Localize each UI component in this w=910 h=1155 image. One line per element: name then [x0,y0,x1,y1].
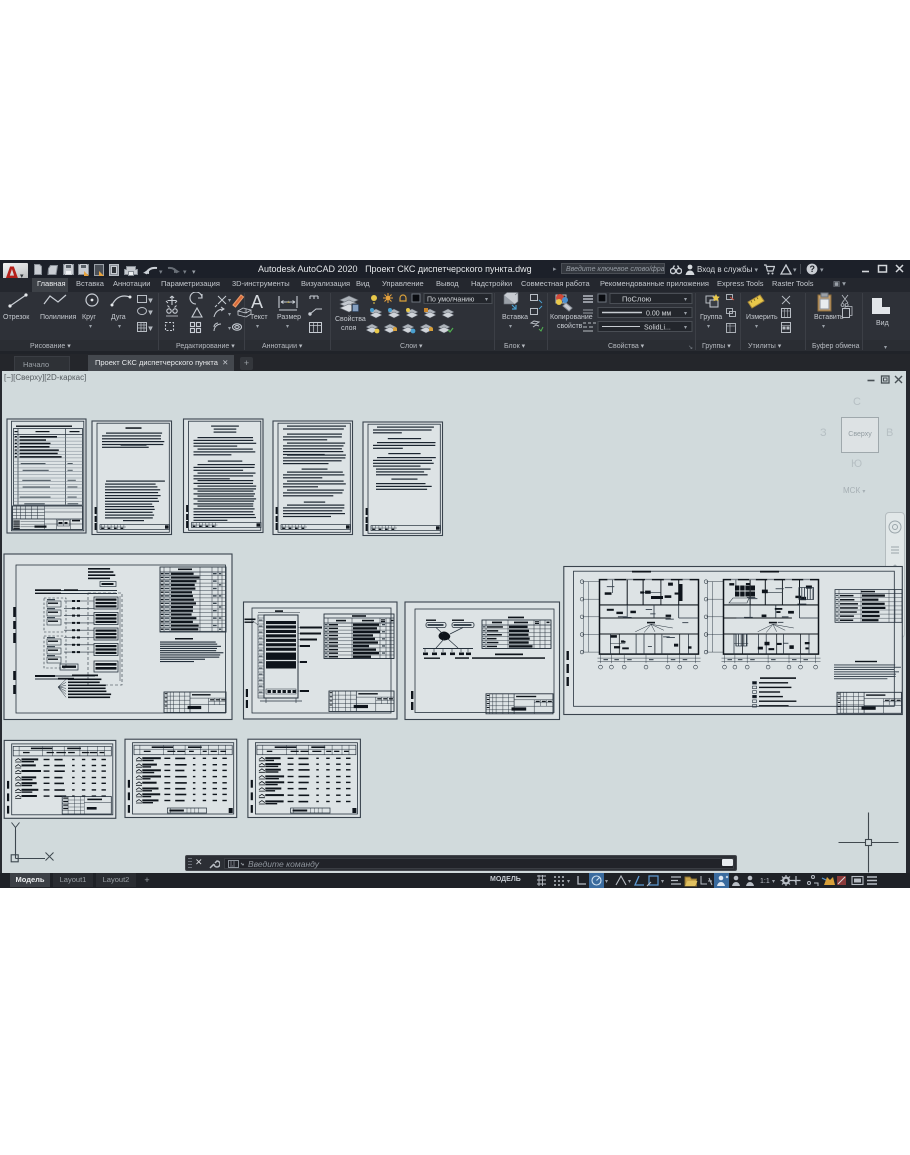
svg-text:▾: ▾ [684,311,687,317]
svg-text:Буфер обмена: Буфер обмена [812,342,860,350]
svg-text:▾: ▾ [822,324,825,330]
svg-text:Вид: Вид [876,320,889,327]
svg-text:0.00 мм: 0.00 мм [646,311,671,318]
svg-text:Блок ▾: Блок ▾ [504,343,526,350]
svg-text:↘: ↘ [688,345,693,351]
svg-text:▾: ▾ [684,297,687,303]
svg-text:▾: ▾ [628,879,631,885]
svg-text:▾: ▾ [192,269,196,276]
svg-text:▾: ▾ [149,326,152,332]
svg-text:Вставка: Вставка [502,314,528,321]
svg-text:▾: ▾ [228,298,231,304]
svg-text:Рисование ▾: Рисование ▾ [30,343,71,350]
svg-text:?: ? [810,264,816,274]
svg-text:▾: ▾ [228,326,231,332]
svg-text:SolidLi...: SolidLi... [644,325,671,332]
svg-text:Утилиты ▾: Утилиты ▾ [748,343,782,350]
svg-text:▾: ▾ [684,325,687,331]
svg-text:▾: ▾ [149,310,152,316]
svg-text:▾: ▾ [755,324,758,330]
svg-text:Дуга: Дуга [111,314,126,321]
svg-text:▾: ▾ [256,324,259,330]
svg-text:▾: ▾ [605,879,608,885]
svg-text:По умолчанию: По умолчанию [427,297,474,304]
svg-text:Аннотации ▾: Аннотации ▾ [262,343,303,350]
svg-text:▾: ▾ [183,269,187,276]
svg-text:▾: ▾ [509,324,512,330]
svg-text:Полилиния: Полилиния [40,314,77,321]
svg-text:▾: ▾ [485,297,488,303]
svg-text:▾: ▾ [118,324,121,330]
svg-text:слоя: слоя [341,325,357,332]
svg-text:Круг: Круг [82,314,96,321]
svg-text:Отрезок: Отрезок [3,314,30,321]
svg-text:▾: ▾ [567,879,570,885]
svg-text:свойств: свойств [557,322,583,330]
svg-text:Редактирование ▾: Редактирование ▾ [176,343,235,350]
svg-text:Свойства ▾: Свойства ▾ [608,342,645,350]
svg-text:▾: ▾ [884,345,887,351]
svg-text:Вставить: Вставить [814,314,844,321]
svg-text:▾: ▾ [772,879,775,885]
svg-text:A: A [251,292,263,312]
svg-text:Группы ▾: Группы ▾ [702,343,731,350]
svg-text:Измерить: Измерить [746,314,778,321]
svg-text:Текст: Текст [250,314,268,321]
svg-text:Размер: Размер [277,314,301,321]
svg-text:Свойства: Свойства [335,315,366,323]
svg-text:▾: ▾ [149,298,152,304]
svg-text:▾: ▾ [89,324,92,330]
svg-text:▾: ▾ [228,312,231,318]
svg-text:▾: ▾ [661,879,664,885]
svg-text:▾: ▾ [286,324,289,330]
svg-text:1:1: 1:1 [760,878,770,885]
svg-text:▾: ▾ [159,269,163,276]
svg-text:Группа: Группа [700,314,722,321]
svg-text:ПоСлою: ПоСлою [622,295,652,304]
svg-text:Копирование: Копирование [550,314,593,321]
svg-text:▾: ▾ [707,324,710,330]
svg-text:Слои ▾: Слои ▾ [400,343,423,350]
